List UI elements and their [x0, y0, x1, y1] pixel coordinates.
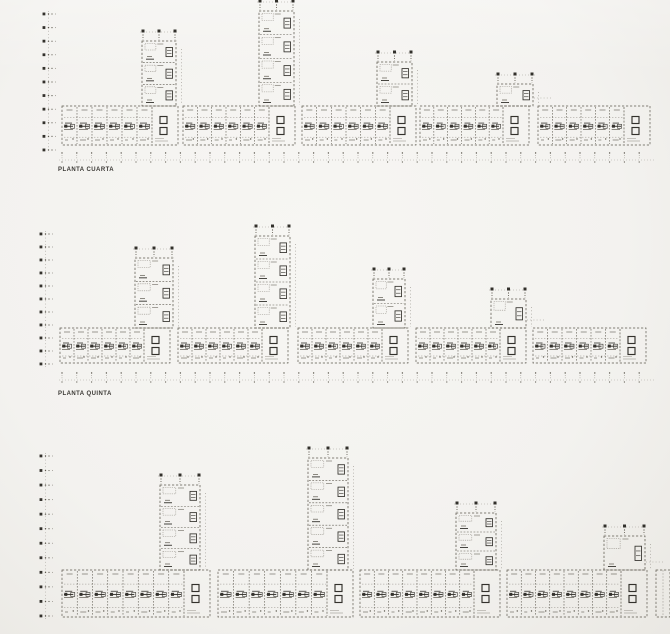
bar-segment: [538, 106, 650, 145]
tower: [133, 247, 179, 328]
bar-segment: [62, 570, 210, 617]
bar-segment: [60, 328, 170, 363]
tower: [140, 30, 182, 106]
floor-label-planta-cuarta: PLANTA CUARTA: [58, 167, 114, 173]
plan-row-planta-inferior-recortada: [40, 447, 670, 619]
column-grid-ticks: [59, 372, 655, 382]
scanned-plan-sheet: PLANTA CUARTA PLANTA QUINTA: [0, 0, 670, 634]
axis-ruler: [43, 11, 56, 153]
tower: [158, 474, 206, 570]
bar-segment: [507, 570, 647, 617]
bar-segment: [298, 328, 408, 363]
plan-row-planta-cuarta: [43, 0, 655, 163]
tower: [454, 502, 502, 570]
tower: [371, 268, 411, 328]
tower: [489, 288, 544, 328]
floor-plans-drawing: [0, 0, 670, 634]
bar-segment: [178, 328, 288, 363]
axis-ruler: [40, 231, 53, 367]
tower: [375, 51, 418, 106]
bar-segment: [656, 570, 670, 617]
tower: [257, 0, 300, 106]
bar-segment: [302, 106, 416, 145]
tower: [602, 525, 663, 570]
bar-segment: [416, 328, 526, 363]
bar-segment: [420, 106, 529, 145]
bar-segment: [218, 570, 353, 617]
plan-row-planta-quinta: [40, 225, 655, 383]
column-grid-ticks: [59, 152, 655, 162]
tower: [306, 447, 354, 570]
axis-ruler: [40, 453, 53, 619]
bar-segment: [62, 106, 178, 145]
bar-segment: [183, 106, 295, 145]
tower: [253, 225, 296, 328]
tower: [495, 73, 551, 106]
floor-label-planta-quinta: PLANTA QUINTA: [58, 391, 112, 397]
bar-segment: [533, 328, 646, 363]
bar-segment: [360, 570, 500, 617]
